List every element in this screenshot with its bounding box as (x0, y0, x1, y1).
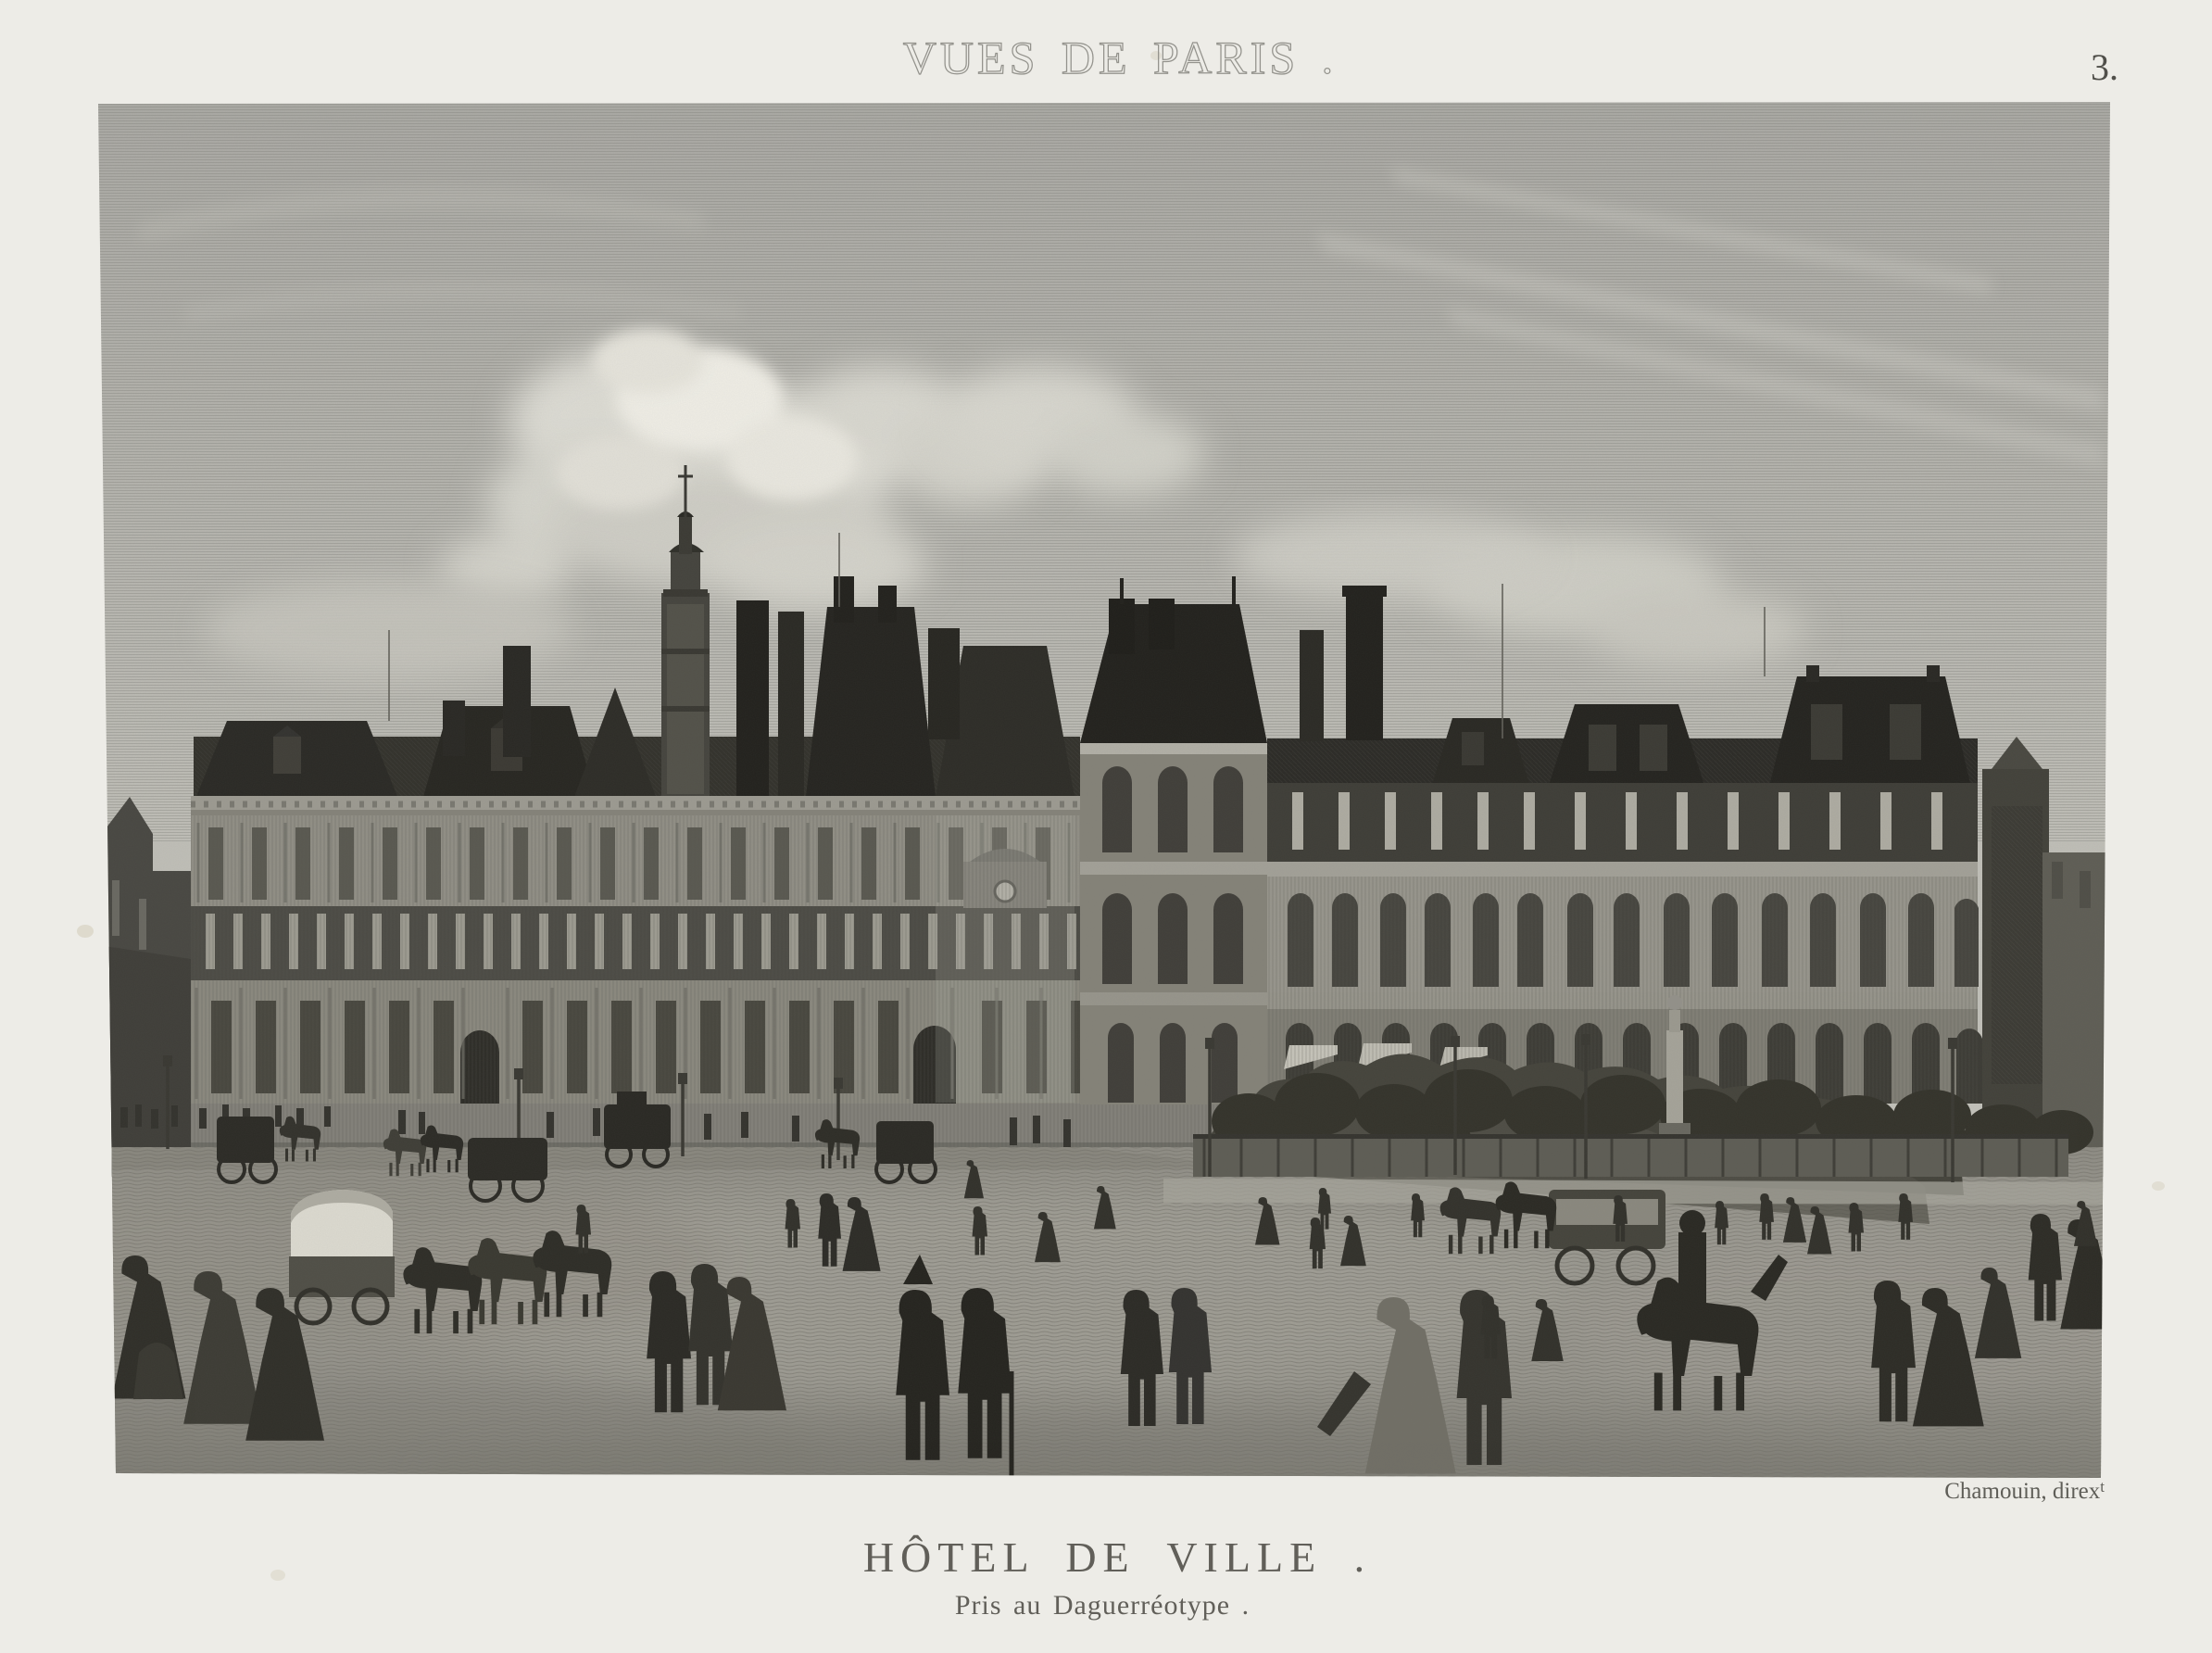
svg-text:HÔTEL DE VILLE .: HÔTEL DE VILLE . (863, 1533, 1371, 1581)
svg-text:VUES DE PARIS .: VUES DE PARIS . (903, 32, 1337, 83)
svg-text:3.: 3. (2091, 46, 2118, 88)
svg-text:Chamouin, dirext: Chamouin, dirext (1944, 1478, 2105, 1504)
svg-text:Pris au Daguerréotype .: Pris au Daguerréotype . (955, 1590, 1250, 1621)
